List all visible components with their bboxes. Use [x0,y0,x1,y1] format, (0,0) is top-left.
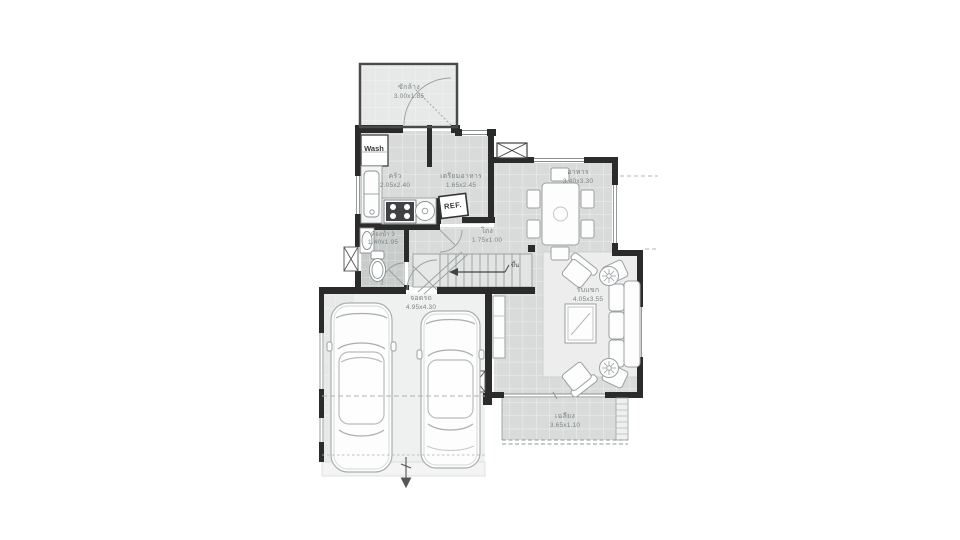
room-label-prep: เตรียมอาหาร1.65x2.45 [440,172,482,190]
room-label-garage: จอดรถ4.95x4.30 [406,294,436,312]
room-label-laundry: ซักล้าง3.00x1.85 [394,83,424,101]
room-label-dining: อาหาร3.40x3.30 [563,168,593,186]
dining-right-window [612,185,618,243]
floor-plan-page: ซักล้าง3.00x1.85 ครัว2.05x2.40 เตรียมอาห… [0,0,960,540]
bathroom-vent-window [344,247,358,271]
round-sink-icon [416,202,435,221]
kitchen-window [355,176,361,214]
garage-left-window-2 [319,418,324,442]
stove-icon [384,200,416,223]
room-label-hall: โถง1.75x1.00 [472,227,502,245]
washer-label: Wash [364,145,384,153]
garage-left-window-1 [319,333,324,389]
coffee-table [565,304,596,343]
room-label-kitchen: ครัว2.05x2.40 [380,172,410,190]
chair [551,247,569,260]
room-label-bathroom: ห้องน้ำ 31.40x1.95 [368,231,398,247]
stairs-up-label: ขึ้น [511,262,519,270]
tv-console [493,296,505,358]
chair [527,220,540,238]
floor-plan-drawing [0,0,960,540]
chair [527,190,540,208]
side-table-icon [600,359,619,378]
dining-top-window [534,157,584,163]
planter-box [497,143,527,158]
dining-table [542,183,579,245]
prep-window [462,129,487,136]
car-sedan [417,311,484,468]
room-label-living: รับแขก4.05x3.55 [573,286,603,304]
toilet-icon [370,251,386,282]
room-label-porch: เฉลียง3.65x1.10 [550,412,580,430]
chair [581,220,594,238]
side-table-icon [600,267,619,286]
car-suv [327,303,396,472]
chair [581,190,594,208]
